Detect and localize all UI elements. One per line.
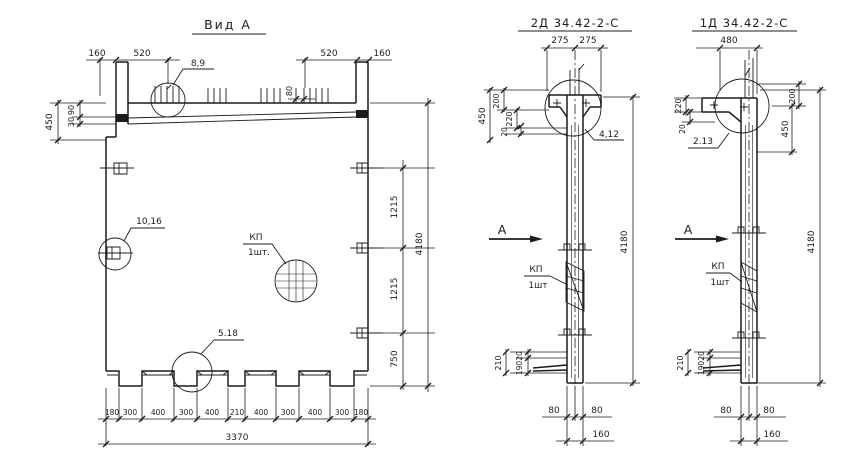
dim-label: 20 xyxy=(515,351,524,361)
dim-label: 450 xyxy=(781,120,791,137)
top-rail-lines xyxy=(128,112,356,124)
rail-anchor-left xyxy=(116,114,128,122)
mesh-label: КП xyxy=(711,262,724,272)
dim-label: 400 xyxy=(205,408,220,417)
dim-label: 20 xyxy=(500,127,509,137)
section-arrow-head xyxy=(716,236,729,243)
section-arrow-head xyxy=(530,236,543,243)
dimension-lines xyxy=(484,48,640,446)
dim-label: 160 xyxy=(373,49,390,59)
dim-label: 275 xyxy=(551,36,568,46)
detail-circle-10-16 xyxy=(99,238,131,270)
dim-label: 300 xyxy=(281,408,296,417)
dim-label: 1215 xyxy=(390,278,400,301)
anchor-cross-marks xyxy=(553,99,590,107)
mesh-label: КП xyxy=(529,265,542,275)
dimension-lines xyxy=(50,58,435,446)
mesh-qty-label: 1шт xyxy=(528,281,547,291)
dim-label: 30 xyxy=(67,117,76,127)
leader-lines xyxy=(124,69,286,354)
dim-label: 180 xyxy=(105,408,120,417)
anchor-cross-marks xyxy=(710,101,748,111)
dim-label: 520 xyxy=(133,49,150,59)
dim-label: 80 xyxy=(285,86,294,96)
dim-label: 300 xyxy=(335,408,350,417)
section-mark: А xyxy=(498,222,509,237)
dim-label-total-width: 3370 xyxy=(226,433,249,443)
dim-label: 20 xyxy=(697,351,706,361)
dim-label: 480 xyxy=(720,36,737,46)
dimension-ticks xyxy=(55,57,431,447)
detail-label-bottom: 5.18 xyxy=(218,329,238,339)
dim-label: 300 xyxy=(123,408,138,417)
dim-label: 80 xyxy=(763,406,775,416)
detail-label-top: 8,9 xyxy=(191,59,206,69)
dim-label: 210 xyxy=(230,408,245,417)
embed-plates xyxy=(98,163,383,338)
dim-label: 400 xyxy=(151,408,166,417)
dim-label: 520 xyxy=(320,49,337,59)
dim-label: 400 xyxy=(254,408,269,417)
mesh-grid-lines xyxy=(276,261,316,301)
view-2d-title: 2Д 34.42-2-С xyxy=(531,16,620,30)
view-a: Вид А 160 520 520 160 8,9 80 450 90 xyxy=(45,17,435,447)
dim-label: 20 xyxy=(678,124,687,134)
dim-label: 80 xyxy=(591,406,603,416)
detail-circle-2-13 xyxy=(715,79,769,133)
dim-label: 90 xyxy=(67,105,76,115)
dim-label: 80 xyxy=(548,406,560,416)
dim-label: 160 xyxy=(88,49,105,59)
dim-label-height: 4180 xyxy=(620,230,630,253)
view-a-title: Вид А xyxy=(204,17,252,32)
dim-label-height: 4180 xyxy=(415,232,425,255)
detail-label: 2.13 xyxy=(693,137,713,147)
dim-label: 190 xyxy=(697,361,706,376)
dim-label: 160 xyxy=(592,430,609,440)
view-1d-title: 1Д 34.42-2-С xyxy=(700,16,789,30)
detail-label-left: 10,16 xyxy=(136,217,162,227)
leader-lines xyxy=(524,129,624,284)
dim-label: 220 xyxy=(505,111,514,126)
drawing-canvas: Вид А 160 520 520 160 8,9 80 450 90 xyxy=(0,0,853,461)
dim-label: 190 xyxy=(515,361,524,376)
rail-anchor-right xyxy=(356,110,368,118)
view-2d: 2Д 34.42-2-С А 275 275 450 200 220 20 4,… xyxy=(478,16,640,446)
dim-label: 160 xyxy=(763,430,780,440)
dim-label: 180 xyxy=(354,408,369,417)
leader-lines xyxy=(688,133,742,282)
dimension-ticks xyxy=(487,45,636,444)
dim-label: 80 xyxy=(720,406,732,416)
dim-label: 450 xyxy=(478,107,488,124)
dimension-ticks xyxy=(683,45,823,444)
dim-label: 450 xyxy=(45,113,55,130)
view-1d: 1Д 34.42-2-С А 480 220 20 200 450 2.13 К… xyxy=(674,16,826,446)
dim-label: 1215 xyxy=(390,196,400,219)
dim-label: 300 xyxy=(179,408,194,417)
mesh-qty-label: 1шт xyxy=(710,278,729,288)
dim-label-height: 4180 xyxy=(807,230,817,253)
dimension-lines xyxy=(674,48,826,446)
rebar-stubs xyxy=(570,64,584,95)
dim-label: 200 xyxy=(492,93,501,108)
dim-label: 210 xyxy=(676,355,685,370)
dim-label: 400 xyxy=(308,408,323,417)
section-mark: А xyxy=(684,222,695,237)
dim-label: 220 xyxy=(674,98,683,113)
column-outline xyxy=(533,95,601,383)
engineering-drawing-sheet: Вид А 160 520 520 160 8,9 80 450 90 xyxy=(0,0,853,461)
dim-label: 200 xyxy=(788,88,797,103)
mesh-label: КП xyxy=(249,233,262,243)
dim-label: 275 xyxy=(579,36,596,46)
detail-label: 4,12 xyxy=(599,130,619,140)
dim-label: 750 xyxy=(390,350,400,367)
dim-label: 210 xyxy=(494,355,503,370)
mesh-qty-label: 1шт. xyxy=(248,248,270,258)
